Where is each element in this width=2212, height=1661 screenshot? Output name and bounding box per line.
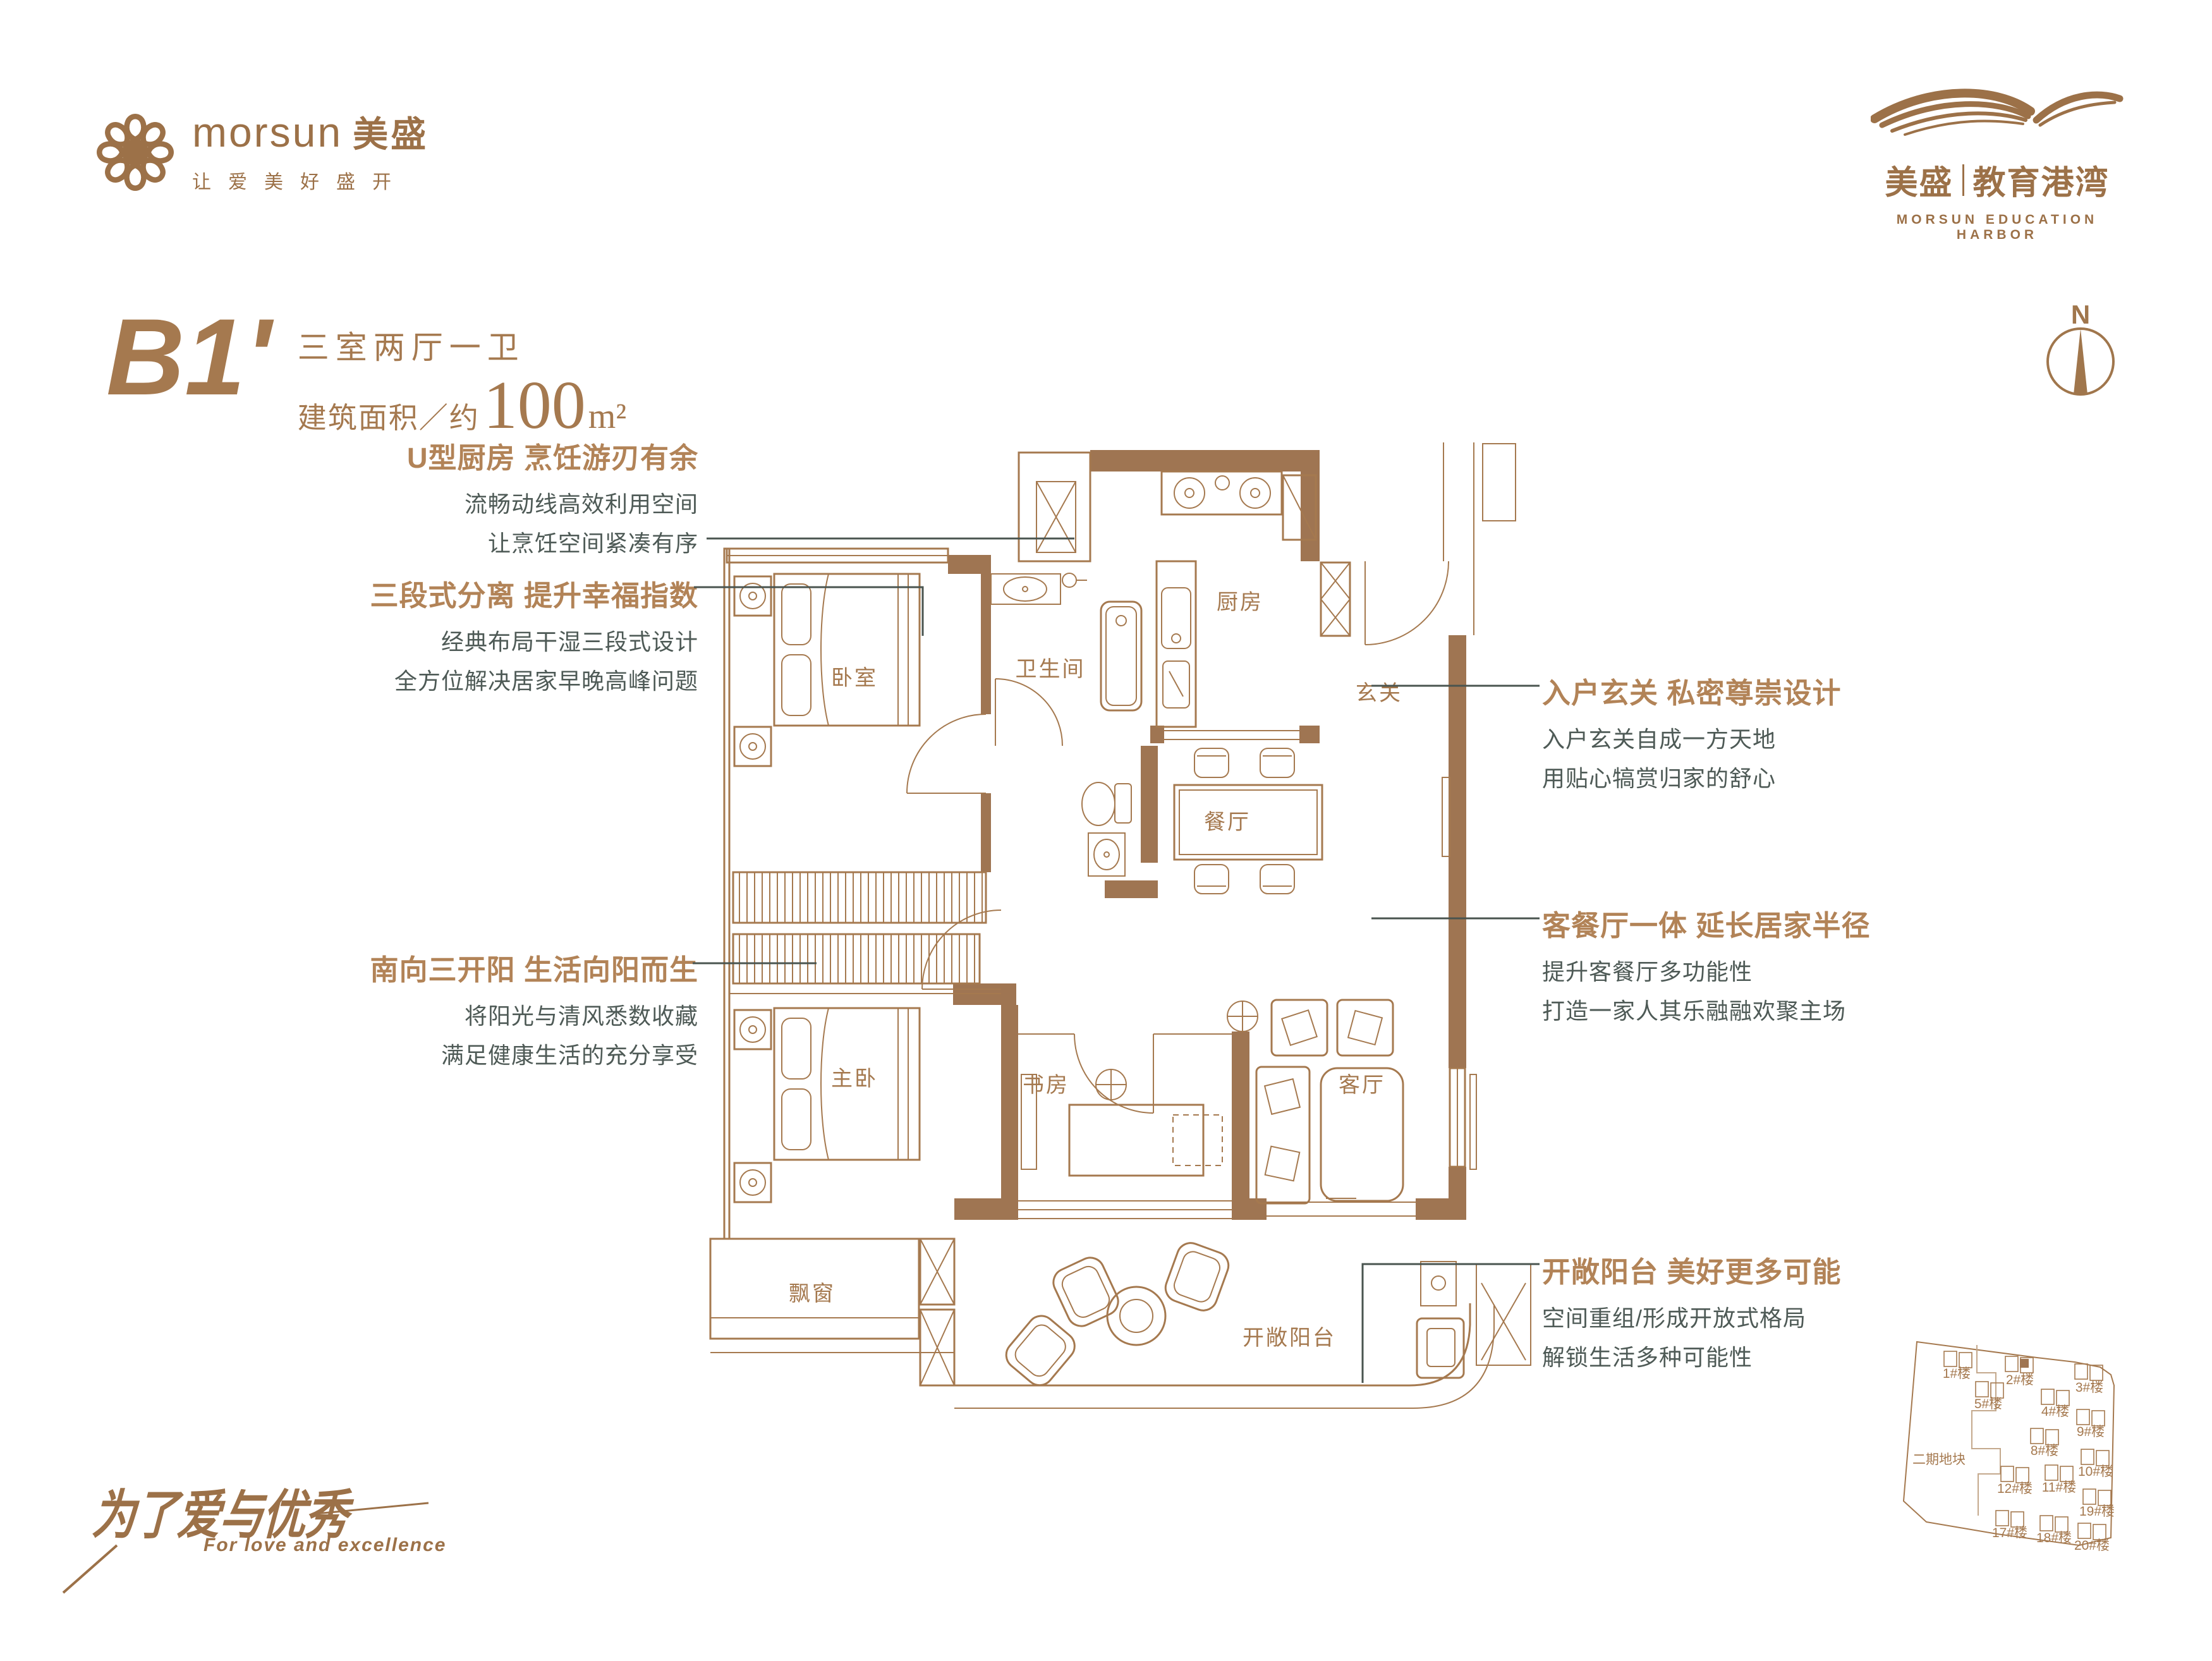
kitchen-label: 厨房: [1217, 590, 1263, 614]
sofa: [1256, 1067, 1310, 1203]
brand-tagline: 让爱美好盛开: [192, 166, 428, 194]
kitchen-sink: [1162, 588, 1191, 648]
living-room-label: 客厅: [1339, 1073, 1385, 1097]
wings-logo-icon: [1871, 82, 2124, 145]
feature-balcony: 开敞阳台 美好更多可能 空间重组/形成开放式格局 解锁生活多种可能性: [1542, 1249, 1934, 1377]
logo-divider: [1962, 164, 1964, 196]
feature-south-facing-line2: 满足健康生活的充分享受: [307, 1036, 698, 1075]
svg-text:2#楼: 2#楼: [2006, 1373, 2034, 1387]
feature-foyer-line2: 用贴心犒赏归家的舒心: [1542, 759, 1934, 798]
svg-text:19#楼: 19#楼: [2079, 1504, 2115, 1519]
unit-layout: 三室两厅一卫: [298, 322, 626, 368]
feature-balcony-title: 开敞阳台 美好更多可能: [1542, 1249, 1934, 1290]
svg-text:20#楼: 20#楼: [2074, 1538, 2110, 1553]
project-brand-cn: 美盛: [1885, 156, 1953, 204]
washing-machine: [1417, 1318, 1464, 1378]
feature-separation-line1: 经典布局干湿三段式设计: [307, 623, 698, 662]
study-label: 书房: [1023, 1073, 1069, 1097]
kitchen: 厨房: [1157, 472, 1316, 739]
compass-needle: [2074, 329, 2087, 394]
phase-label: 二期地块: [1912, 1452, 1966, 1467]
balcony: 开敞阳台: [1000, 1239, 1464, 1391]
entry-closet: [1321, 563, 1350, 636]
foyer: 玄关: [1321, 561, 1450, 856]
tv: [1470, 1074, 1476, 1169]
compass-north-label: N: [2071, 300, 2090, 329]
feature-living-dining-line1: 提升客餐厅多功能性: [1542, 952, 1934, 992]
project-name-cn: 教育港湾: [1973, 156, 2110, 204]
feature-balcony-line1: 空间重组/形成开放式格局: [1542, 1299, 1934, 1338]
study-door: [1074, 1034, 1153, 1113]
unit-area-prefix: 建筑面积／约: [298, 395, 480, 437]
bay-window: 飘窗: [710, 1239, 954, 1353]
feature-foyer-title: 入户玄关 私密尊崇设计: [1542, 670, 1934, 711]
laundry-sink: [1421, 1262, 1456, 1306]
balcony-table: [1107, 1287, 1165, 1345]
unit-area-value: 100: [483, 374, 586, 437]
master-bedroom-label: 主卧: [831, 1067, 878, 1091]
feature-separation-title: 三段式分离 提升幸福指数: [307, 573, 698, 614]
flower-center: [122, 139, 149, 166]
svg-text:5#楼: 5#楼: [1974, 1397, 2002, 1411]
brand-name-cn: 美盛: [353, 106, 428, 157]
feature-foyer-line1: 入户玄关自成一方天地: [1542, 720, 1934, 759]
feature-south-facing-title: 南向三开阳 生活向阳而生: [307, 947, 698, 988]
entry-door: [1365, 561, 1449, 645]
feature-separation-line2: 全方位解决居家早晚高峰问题: [307, 662, 698, 701]
svg-text:18#楼: 18#楼: [2036, 1531, 2072, 1545]
svg-text:11#楼: 11#楼: [2042, 1480, 2076, 1495]
svg-text:17#楼: 17#楼: [1992, 1526, 2027, 1540]
flower-logo-icon: [95, 106, 176, 198]
balcony-label: 开敞阳台: [1243, 1326, 1336, 1350]
walls: [948, 450, 1466, 1220]
svg-text:4#楼: 4#楼: [2041, 1404, 2069, 1419]
bathtub: [1101, 602, 1141, 710]
study: 书房: [1018, 1034, 1232, 1176]
site-building-labels: 1#楼 2#楼 3#楼 5#楼 4#楼 9#楼 8#楼 10#楼 12#楼 11…: [1943, 1366, 2115, 1553]
highlighted-unit: [2020, 1359, 2029, 1368]
svg-text:1#楼: 1#楼: [1943, 1366, 1971, 1381]
bedroom-label: 卧室: [831, 666, 878, 690]
feature-kitchen: U型厨房 烹饪游刃有余 流畅动线高效利用空间 让烹饪空间紧凑有序: [307, 435, 698, 563]
feature-foyer: 入户玄关 私密尊崇设计 入户玄关自成一方天地 用贴心犒赏归家的舒心: [1542, 670, 1934, 798]
brand-logo-left: morsun 美盛 让爱美好盛开: [95, 106, 428, 198]
feature-living-dining-line2: 打造一家人其乐融融欢聚主场: [1542, 992, 1934, 1031]
feature-kitchen-line1: 流畅动线高效利用空间: [307, 485, 698, 524]
dining-room: 餐厅: [1174, 748, 1322, 894]
living-room: 客厅: [1227, 1000, 1476, 1203]
dining-label: 餐厅: [1204, 810, 1251, 834]
svg-text:8#楼: 8#楼: [2031, 1444, 2058, 1458]
compass: N: [2026, 296, 2136, 406]
svg-text:12#楼: 12#楼: [1997, 1482, 2033, 1496]
feature-living-dining: 客餐厅一体 延长居家半径 提升客餐厅多功能性 打造一家人其乐融融欢聚主场: [1542, 903, 1934, 1031]
feature-south-facing: 南向三开阳 生活向阳而生 将阳光与清风悉数收藏 满足健康生活的充分享受: [307, 947, 698, 1075]
feature-kitchen-title: U型厨房 烹饪游刃有余: [307, 435, 698, 476]
leader-separation: [694, 587, 923, 636]
feature-living-dining-title: 客餐厅一体 延长居家半径: [1542, 903, 1934, 944]
feature-balcony-line2: 解锁生活多种可能性: [1542, 1338, 1934, 1377]
floor-plan: 飘窗 厨房 卫生间: [670, 417, 1567, 1530]
unit-code: B1': [106, 297, 271, 417]
wardrobes: [729, 872, 1001, 994]
kitchen-sliding-door: [1164, 731, 1299, 739]
armchair: [1337, 1000, 1393, 1056]
brand-name-en: morsun: [192, 108, 343, 156]
brand-logo-right: 美盛 教育港湾 MORSUN EDUCATION HARBOR: [1869, 82, 2125, 243]
svg-text:9#楼: 9#楼: [2077, 1425, 2105, 1439]
site-plan: 二期地块 1#楼 2#楼 3#楼 5#楼 4#楼 9#楼 8#楼 10#楼 12…: [1880, 1321, 2184, 1599]
bathroom-door: [995, 679, 1062, 746]
feature-separation: 三段式分离 提升幸福指数 经典布局干湿三段式设计 全方位解决居家早晚高峰问题: [307, 573, 698, 701]
bathroom: 卫生间: [991, 573, 1141, 746]
feature-south-facing-line1: 将阳光与清风悉数收藏: [307, 997, 698, 1036]
bedroom: 卧室: [734, 574, 986, 793]
phase-boundary: [1972, 1345, 2000, 1516]
unit-title-block: B1' 三室两厅一卫 建筑面积／约 100 m²: [106, 297, 626, 437]
svg-text:3#楼: 3#楼: [2075, 1380, 2103, 1395]
unit-area-unit: m²: [588, 396, 626, 437]
stove-counter: [1162, 472, 1282, 514]
svg-text:10#楼: 10#楼: [2078, 1464, 2113, 1479]
bay-window-label: 飘窗: [789, 1282, 836, 1306]
wc: [1082, 782, 1131, 876]
slogan-brush-strokes: [51, 1492, 430, 1605]
balcony-structure: [920, 1198, 1531, 1408]
project-name-en: MORSUN EDUCATION HARBOR: [1869, 212, 2125, 243]
exterior-lines: [724, 442, 1516, 1239]
bathroom-label: 卫生间: [1016, 657, 1086, 681]
feature-kitchen-line2: 让烹饪空间紧凑有序: [307, 524, 698, 563]
toilet: [1082, 782, 1115, 825]
armchair: [1272, 1000, 1327, 1056]
